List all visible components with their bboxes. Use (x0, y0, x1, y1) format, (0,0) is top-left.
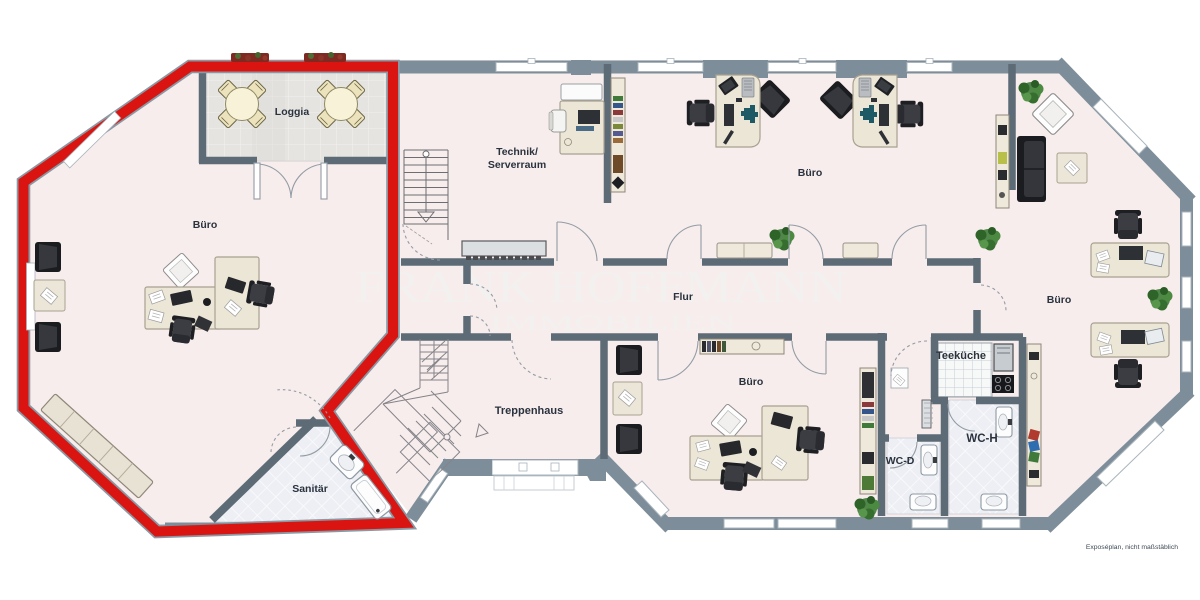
svg-text:WC-D: WC-D (886, 455, 915, 467)
svg-text:Sanitär: Sanitär (292, 483, 328, 495)
svg-text:Technik/: Technik/ (496, 146, 538, 158)
svg-text:FRANK HOFFMANN: FRANK HOFFMANN (355, 261, 847, 312)
svg-text:Büro: Büro (1047, 294, 1072, 306)
svg-text:Büro: Büro (798, 167, 823, 179)
svg-text:Loggia: Loggia (275, 106, 310, 118)
svg-text:Büro: Büro (739, 376, 764, 388)
svg-text:Teeküche: Teeküche (936, 350, 986, 362)
svg-text:Treppenhaus: Treppenhaus (495, 405, 563, 417)
svg-text:Büro: Büro (193, 219, 218, 231)
svg-text:Flur: Flur (673, 291, 693, 303)
svg-text:Exposéplan, nicht maßstäblich: Exposéplan, nicht maßstäblich (1086, 544, 1178, 551)
svg-text:IMMOBILIEN: IMMOBILIEN (489, 310, 736, 335)
svg-text:WC-H: WC-H (966, 433, 997, 445)
svg-text:Serverraum: Serverraum (488, 159, 546, 171)
